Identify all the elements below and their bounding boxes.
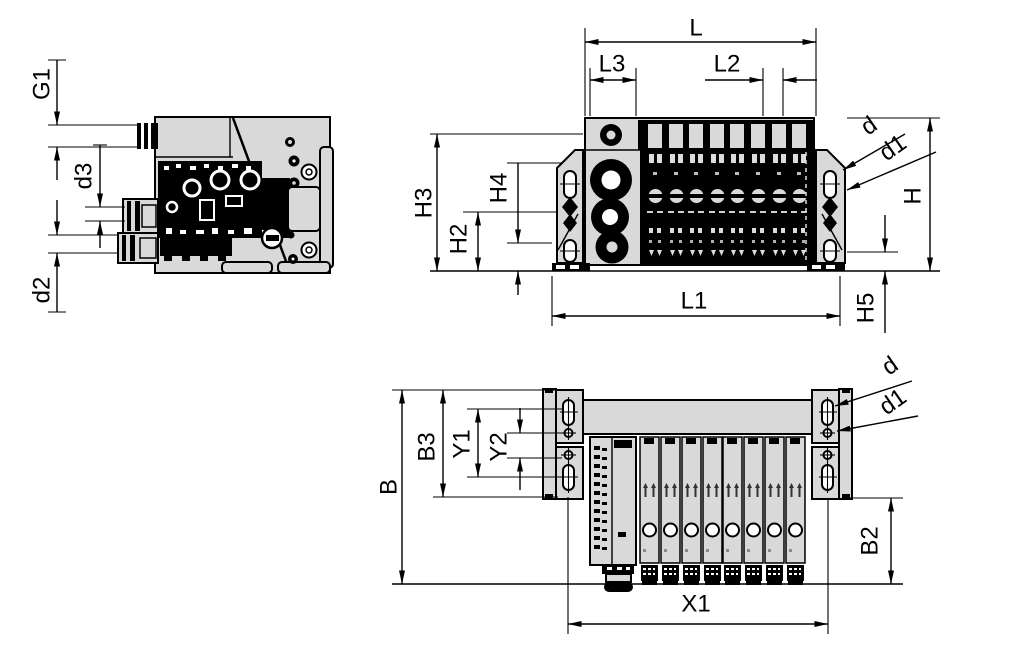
dim-label-h2: H2 [446, 224, 473, 255]
dimension-g1: G1 [29, 60, 138, 180]
front-view-device [552, 118, 845, 271]
dim-label-l3: L3 [599, 51, 626, 78]
dim-label-d-top: d [877, 351, 903, 381]
top-view: B B3 Y1 Y2 X1 [376, 351, 919, 634]
dim-label-d1-front: d1 [874, 129, 911, 166]
dim-label-h5: H5 [853, 293, 880, 324]
dim-label-x1: X1 [681, 591, 710, 618]
drawing-page: G1 d3 d2 [0, 0, 1010, 650]
dim-label-y1: Y1 [449, 429, 476, 458]
dim-label-l2: L2 [714, 51, 741, 78]
dimension-h2: H2 [446, 212, 558, 271]
dim-label-d2: d2 [29, 277, 56, 304]
dimension-b2: B2 [846, 498, 903, 584]
drawing-canvas: G1 d3 d2 [0, 0, 1010, 650]
dim-label-b3: B3 [414, 432, 441, 461]
dim-label-d-front: d [856, 111, 882, 141]
dim-label-d3: d3 [71, 163, 98, 190]
top-view-device [543, 389, 852, 592]
dimension-l2: L2 [705, 51, 817, 117]
dim-label-b: B [376, 479, 403, 495]
dim-label-d1-top: d1 [874, 383, 911, 420]
dim-label-h3: H3 [411, 188, 438, 219]
side-view-device [118, 117, 333, 273]
dim-label-y2: Y2 [486, 432, 513, 461]
dimension-h5: H5 [847, 215, 898, 333]
dimension-b: B [376, 390, 556, 584]
g1-fitting [137, 123, 158, 149]
dim-label-l: L [689, 15, 702, 42]
top-view-module [590, 437, 636, 592]
dim-label-h4: H4 [486, 173, 513, 204]
dimension-l1: L1 [552, 276, 840, 326]
dim-label-g1: G1 [29, 68, 56, 100]
dimension-h4: H4 [486, 163, 564, 295]
dimension-d3: d3 [71, 145, 126, 248]
d3-fitting [123, 199, 158, 233]
dimension-d2: d2 [29, 200, 119, 312]
dim-label-b2: B2 [857, 526, 884, 555]
dimension-l3: L3 [590, 51, 636, 117]
dim-label-l1: L1 [681, 288, 708, 315]
dim-label-h: H [900, 187, 927, 204]
d2-fitting [118, 233, 158, 263]
front-view: L L3 L2 H3 H4 [411, 15, 941, 334]
side-view: G1 d3 d2 [29, 60, 334, 312]
